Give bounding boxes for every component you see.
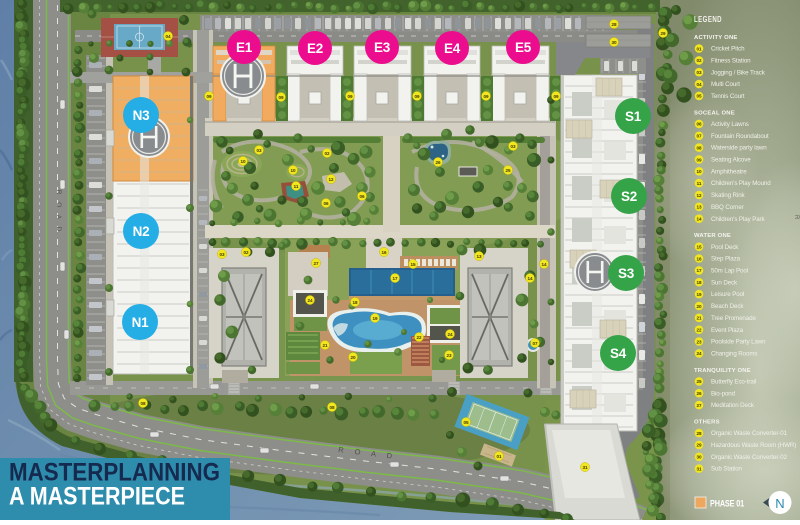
svg-text:29: 29 — [660, 31, 666, 36]
svg-text:14: 14 — [541, 262, 547, 267]
svg-text:ACTIVITY ONE: ACTIVITY ONE — [694, 35, 738, 41]
svg-text:25: 25 — [696, 379, 702, 384]
svg-text:28: 28 — [611, 22, 617, 27]
svg-text:31: 31 — [696, 466, 702, 471]
svg-text:07: 07 — [532, 341, 538, 346]
svg-text:E5: E5 — [515, 40, 532, 55]
svg-text:Sub Station: Sub Station — [711, 466, 743, 473]
svg-text:22: 22 — [416, 335, 422, 340]
svg-text:03: 03 — [256, 148, 262, 153]
svg-text:07: 07 — [696, 134, 702, 139]
svg-text:12: 12 — [696, 193, 702, 198]
svg-text:PHASE 01: PHASE 01 — [710, 499, 744, 509]
svg-text:R: R — [793, 215, 799, 220]
svg-text:05: 05 — [696, 94, 702, 99]
svg-text:03: 03 — [510, 144, 516, 149]
svg-text:Step Plaza: Step Plaza — [711, 256, 741, 263]
svg-text:Changing Rooms: Changing Rooms — [711, 351, 757, 358]
svg-text:09: 09 — [278, 95, 284, 100]
svg-text:15: 15 — [696, 245, 702, 250]
svg-text:15: 15 — [410, 262, 416, 267]
svg-text:Sun Deck: Sun Deck — [711, 279, 738, 286]
svg-text:21: 21 — [322, 343, 328, 348]
svg-text:09: 09 — [483, 94, 489, 99]
svg-text:08: 08 — [696, 145, 702, 150]
svg-text:R O A D: R O A D — [55, 190, 62, 234]
svg-text:22: 22 — [696, 328, 702, 333]
svg-text:20: 20 — [350, 355, 356, 360]
svg-text:30: 30 — [611, 40, 617, 45]
svg-text:06: 06 — [359, 194, 365, 199]
svg-text:TRANQUILITY ONE: TRANQUILITY ONE — [694, 368, 751, 374]
svg-text:23: 23 — [446, 353, 452, 358]
svg-text:04: 04 — [696, 82, 702, 87]
svg-text:N2: N2 — [133, 224, 150, 239]
svg-text:29: 29 — [696, 443, 702, 448]
svg-text:Leisure Pool: Leisure Pool — [711, 291, 744, 298]
svg-text:04: 04 — [165, 34, 171, 39]
svg-text:17: 17 — [392, 276, 398, 281]
svg-text:Meditation Deck: Meditation Deck — [711, 402, 755, 409]
svg-text:01: 01 — [696, 46, 702, 51]
svg-text:Tree Promenade: Tree Promenade — [711, 315, 756, 322]
svg-text:Beach Deck: Beach Deck — [711, 303, 744, 310]
svg-text:03: 03 — [696, 70, 702, 75]
svg-text:10: 10 — [290, 168, 296, 173]
svg-text:Skating Rink: Skating Rink — [711, 192, 746, 199]
svg-text:Amphitheatre: Amphitheatre — [711, 168, 747, 175]
svg-text:09: 09 — [696, 157, 702, 162]
svg-text:E3: E3 — [374, 40, 391, 55]
svg-text:11: 11 — [294, 184, 299, 189]
svg-text:BBQ Corner: BBQ Corner — [711, 204, 744, 211]
svg-text:S4: S4 — [610, 346, 627, 361]
svg-text:24: 24 — [307, 298, 313, 303]
svg-text:Seating Alcove: Seating Alcove — [711, 157, 751, 164]
svg-text:27: 27 — [313, 261, 319, 266]
svg-text:Cricket Pitch: Cricket Pitch — [711, 46, 745, 53]
svg-text:N3: N3 — [133, 108, 150, 123]
svg-text:Butterfly Eco-trail: Butterfly Eco-trail — [711, 379, 756, 386]
svg-text:E1: E1 — [236, 40, 253, 55]
svg-text:OTHERS: OTHERS — [694, 420, 720, 426]
svg-text:Children's Play Mound: Children's Play Mound — [711, 180, 771, 187]
svg-text:20: 20 — [696, 304, 702, 309]
svg-text:Fountain Roundabout: Fountain Roundabout — [711, 133, 769, 140]
svg-text:SOCEAL ONE: SOCEAL ONE — [694, 110, 735, 116]
svg-text:Hazardous Waste Room (HWR): Hazardous Waste Room (HWR) — [711, 442, 796, 449]
svg-text:09: 09 — [206, 94, 212, 99]
svg-text:24: 24 — [447, 332, 453, 337]
svg-text:A MASTERPIECE: A MASTERPIECE — [9, 483, 185, 511]
svg-text:05: 05 — [463, 420, 469, 425]
svg-text:Bio-pond: Bio-pond — [711, 390, 736, 397]
svg-text:16: 16 — [696, 256, 702, 261]
svg-text:18: 18 — [352, 300, 358, 305]
svg-text:23: 23 — [696, 339, 702, 344]
svg-text:Multi Court: Multi Court — [711, 81, 740, 88]
svg-text:26: 26 — [435, 160, 441, 165]
svg-text:11: 11 — [697, 181, 702, 186]
svg-text:13: 13 — [696, 205, 702, 210]
svg-text:Pool Deck: Pool Deck — [711, 244, 739, 251]
svg-text:30: 30 — [696, 455, 702, 460]
svg-text:Fitness Station: Fitness Station — [711, 58, 751, 65]
svg-text:E4: E4 — [444, 41, 461, 56]
svg-text:S2: S2 — [621, 189, 637, 204]
svg-text:50m Lap Pool: 50m Lap Pool — [711, 268, 748, 275]
svg-text:09: 09 — [553, 94, 559, 99]
svg-text:Tennis Court: Tennis Court — [711, 93, 745, 100]
svg-text:02: 02 — [324, 151, 330, 156]
svg-text:WATER ONE: WATER ONE — [694, 233, 731, 239]
svg-text:N1: N1 — [132, 315, 149, 330]
svg-text:Waterside party lawn: Waterside party lawn — [711, 145, 767, 152]
svg-text:12: 12 — [328, 177, 334, 182]
svg-text:28: 28 — [696, 431, 702, 436]
svg-text:16: 16 — [381, 250, 387, 255]
svg-text:08: 08 — [329, 405, 335, 410]
svg-text:13: 13 — [476, 254, 482, 259]
svg-text:Activity Lawns: Activity Lawns — [711, 121, 749, 128]
svg-text:17: 17 — [696, 268, 702, 273]
svg-text:01: 01 — [496, 454, 502, 459]
svg-text:S3: S3 — [618, 266, 635, 281]
svg-text:Organic Waste Converter-01: Organic Waste Converter-01 — [711, 430, 788, 437]
svg-text:S1: S1 — [625, 109, 642, 124]
svg-text:Children's Play Park: Children's Play Park — [711, 216, 766, 223]
svg-text:03: 03 — [219, 252, 225, 257]
svg-text:06: 06 — [696, 122, 702, 127]
svg-text:02: 02 — [696, 58, 702, 63]
svg-text:Poolside Party Lawn: Poolside Party Lawn — [711, 339, 766, 346]
svg-text:31: 31 — [582, 465, 588, 470]
svg-text:25: 25 — [505, 168, 511, 173]
svg-text:08: 08 — [140, 401, 146, 406]
svg-text:Organic Waste Converter-02: Organic Waste Converter-02 — [711, 454, 788, 461]
svg-text:19: 19 — [372, 316, 378, 321]
svg-text:26: 26 — [696, 391, 702, 396]
svg-text:N: N — [775, 496, 784, 511]
svg-text:Event Plaza: Event Plaza — [711, 327, 744, 334]
svg-text:09: 09 — [347, 94, 353, 99]
svg-text:19: 19 — [696, 292, 702, 297]
svg-text:02: 02 — [243, 250, 249, 255]
svg-text:10: 10 — [696, 169, 702, 174]
svg-text:10: 10 — [240, 159, 246, 164]
svg-text:09: 09 — [414, 94, 420, 99]
svg-text:LEGEND: LEGEND — [694, 14, 722, 24]
svg-text:18: 18 — [696, 280, 702, 285]
svg-text:27: 27 — [696, 403, 702, 408]
svg-text:24: 24 — [696, 351, 702, 356]
svg-text:06: 06 — [323, 201, 329, 206]
svg-text:14: 14 — [696, 217, 702, 222]
svg-text:Jogging / Bike Track: Jogging / Bike Track — [711, 69, 766, 76]
svg-text:21: 21 — [696, 316, 702, 321]
svg-text:E2: E2 — [307, 41, 323, 56]
svg-text:14: 14 — [527, 276, 533, 281]
